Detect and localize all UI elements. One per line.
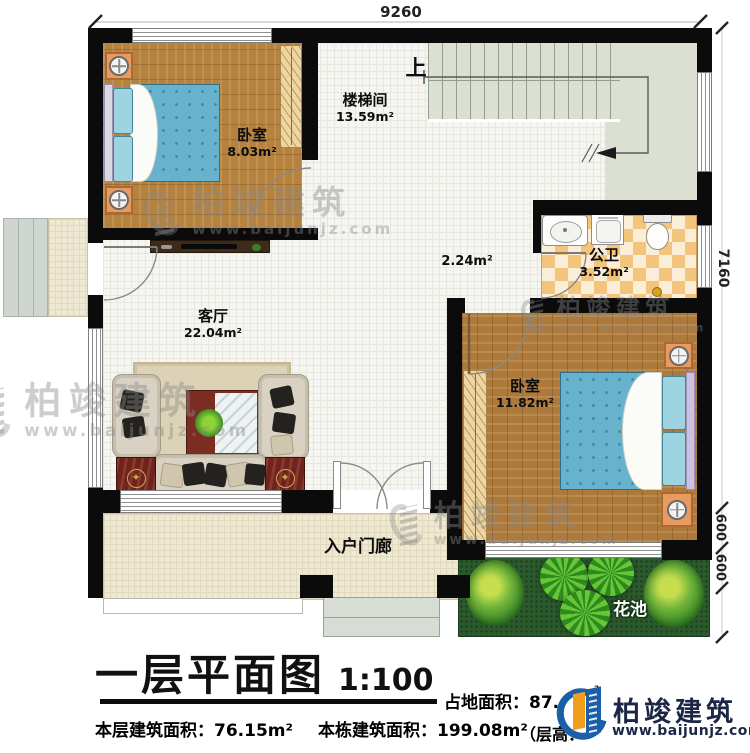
bed1-nightstand [105,186,133,214]
entry-door-leaf [423,461,431,509]
wall-left [88,295,103,328]
window [88,328,103,488]
wall-living-bottom [88,490,120,513]
window [132,28,272,43]
wall-right [697,172,712,225]
wall-living-bottom [430,490,462,513]
brand-logo-icon [557,684,609,748]
tv-cabinet [150,240,270,253]
armchair-left [112,374,161,458]
hallway-area-label: 2.24m² [432,254,502,269]
porch-pillar [300,575,333,598]
window [697,225,712,288]
wall-bathroom-bottom [530,298,712,313]
page-title: 一层平面图 [95,641,325,703]
wall-left [88,43,103,243]
window [485,542,662,558]
dim-right-600a: 600 [713,508,728,548]
bed2-headboard [686,372,695,490]
bathroom-sink-counter [542,215,588,246]
dim-tick [716,631,728,643]
bed2-pillow [662,376,686,430]
wall-bedroom1-right [302,43,318,160]
porch-step-band [103,598,303,614]
emblem-icon [127,469,146,488]
land-area-text: 占地面积：87. [444,688,559,713]
dim-right-600b: 600 [713,548,728,588]
wall-bedroom2-left [447,313,462,560]
dim-right-height: 7160 [715,243,731,293]
bed1-pillow [113,88,133,134]
bathroom-label: 公卫 3.52m² [568,247,640,279]
porch-pillar [437,575,470,598]
entry-steps [323,597,440,637]
wall-bedroom1-bottom [88,228,318,240]
title-block: 一层平面图 1:100 [95,641,434,703]
bed1-nightstand [105,52,133,80]
floor-area-text: 本层建筑面积：76.15m² [95,716,293,741]
wall-bathroom-left [533,215,541,253]
lamp-icon [669,346,689,366]
dim-tick [716,22,728,34]
stair-treads [428,43,620,122]
stairs-up-label: 上 [402,56,430,81]
floor-drain [652,287,662,297]
bed2-pillow [662,432,686,486]
washing-machine [591,214,624,245]
porch-label: 入户门廊 [308,537,408,557]
bed2-nightstand [664,342,693,369]
coffee-table [186,390,260,456]
dim-tick [89,15,102,28]
armchair-right [258,374,309,460]
brand-website: www.baijunjz.com [612,723,750,739]
stair-mid-line [428,80,620,81]
bedroom2-label: 卧室 11.82m² [480,378,570,410]
window [120,490,282,513]
bed1-pillow [113,136,133,182]
side-entry-platform-inner [48,218,88,317]
entry-door-leaf [333,461,341,509]
side-entry-platform-outer [3,218,48,317]
wall-right [697,28,712,72]
wall-bedroom2-bottom [662,540,712,560]
wall-living-bottom [282,490,333,513]
toilet [641,213,675,253]
stairwell-label: 楼梯间 13.59m² [322,92,408,124]
bedroom1-label: 卧室 8.03m² [212,127,292,159]
bed1-headboard [104,84,113,182]
window [697,72,712,172]
scale-label: 1:100 [338,663,434,698]
table-plant [195,409,223,437]
dim-top-width: 9260 [366,3,436,21]
flower-bed-label: 花池 [598,600,662,620]
lamp-icon [109,56,129,76]
title-underline [100,699,437,704]
emblem-icon [276,469,295,488]
wall-bathroom-top [533,200,712,215]
wall-bathroom-bottom [447,298,465,313]
lamp-icon [109,190,129,210]
wall-right [697,288,712,560]
lamp-icon [667,500,687,520]
bed2-nightstand [661,492,693,527]
shrub-plant [466,560,524,626]
living-room-label: 客厅 22.04m² [168,308,258,340]
building-area-text: 本栋建筑面积：199.08m² [318,716,528,741]
dim-tick [694,15,707,28]
wall-bedroom2-bottom [447,540,485,560]
watermark-building-icon [0,382,15,442]
floor-plan-page: { "plan": { "rooms": { "bedroom1": {"nam… [0,0,750,753]
